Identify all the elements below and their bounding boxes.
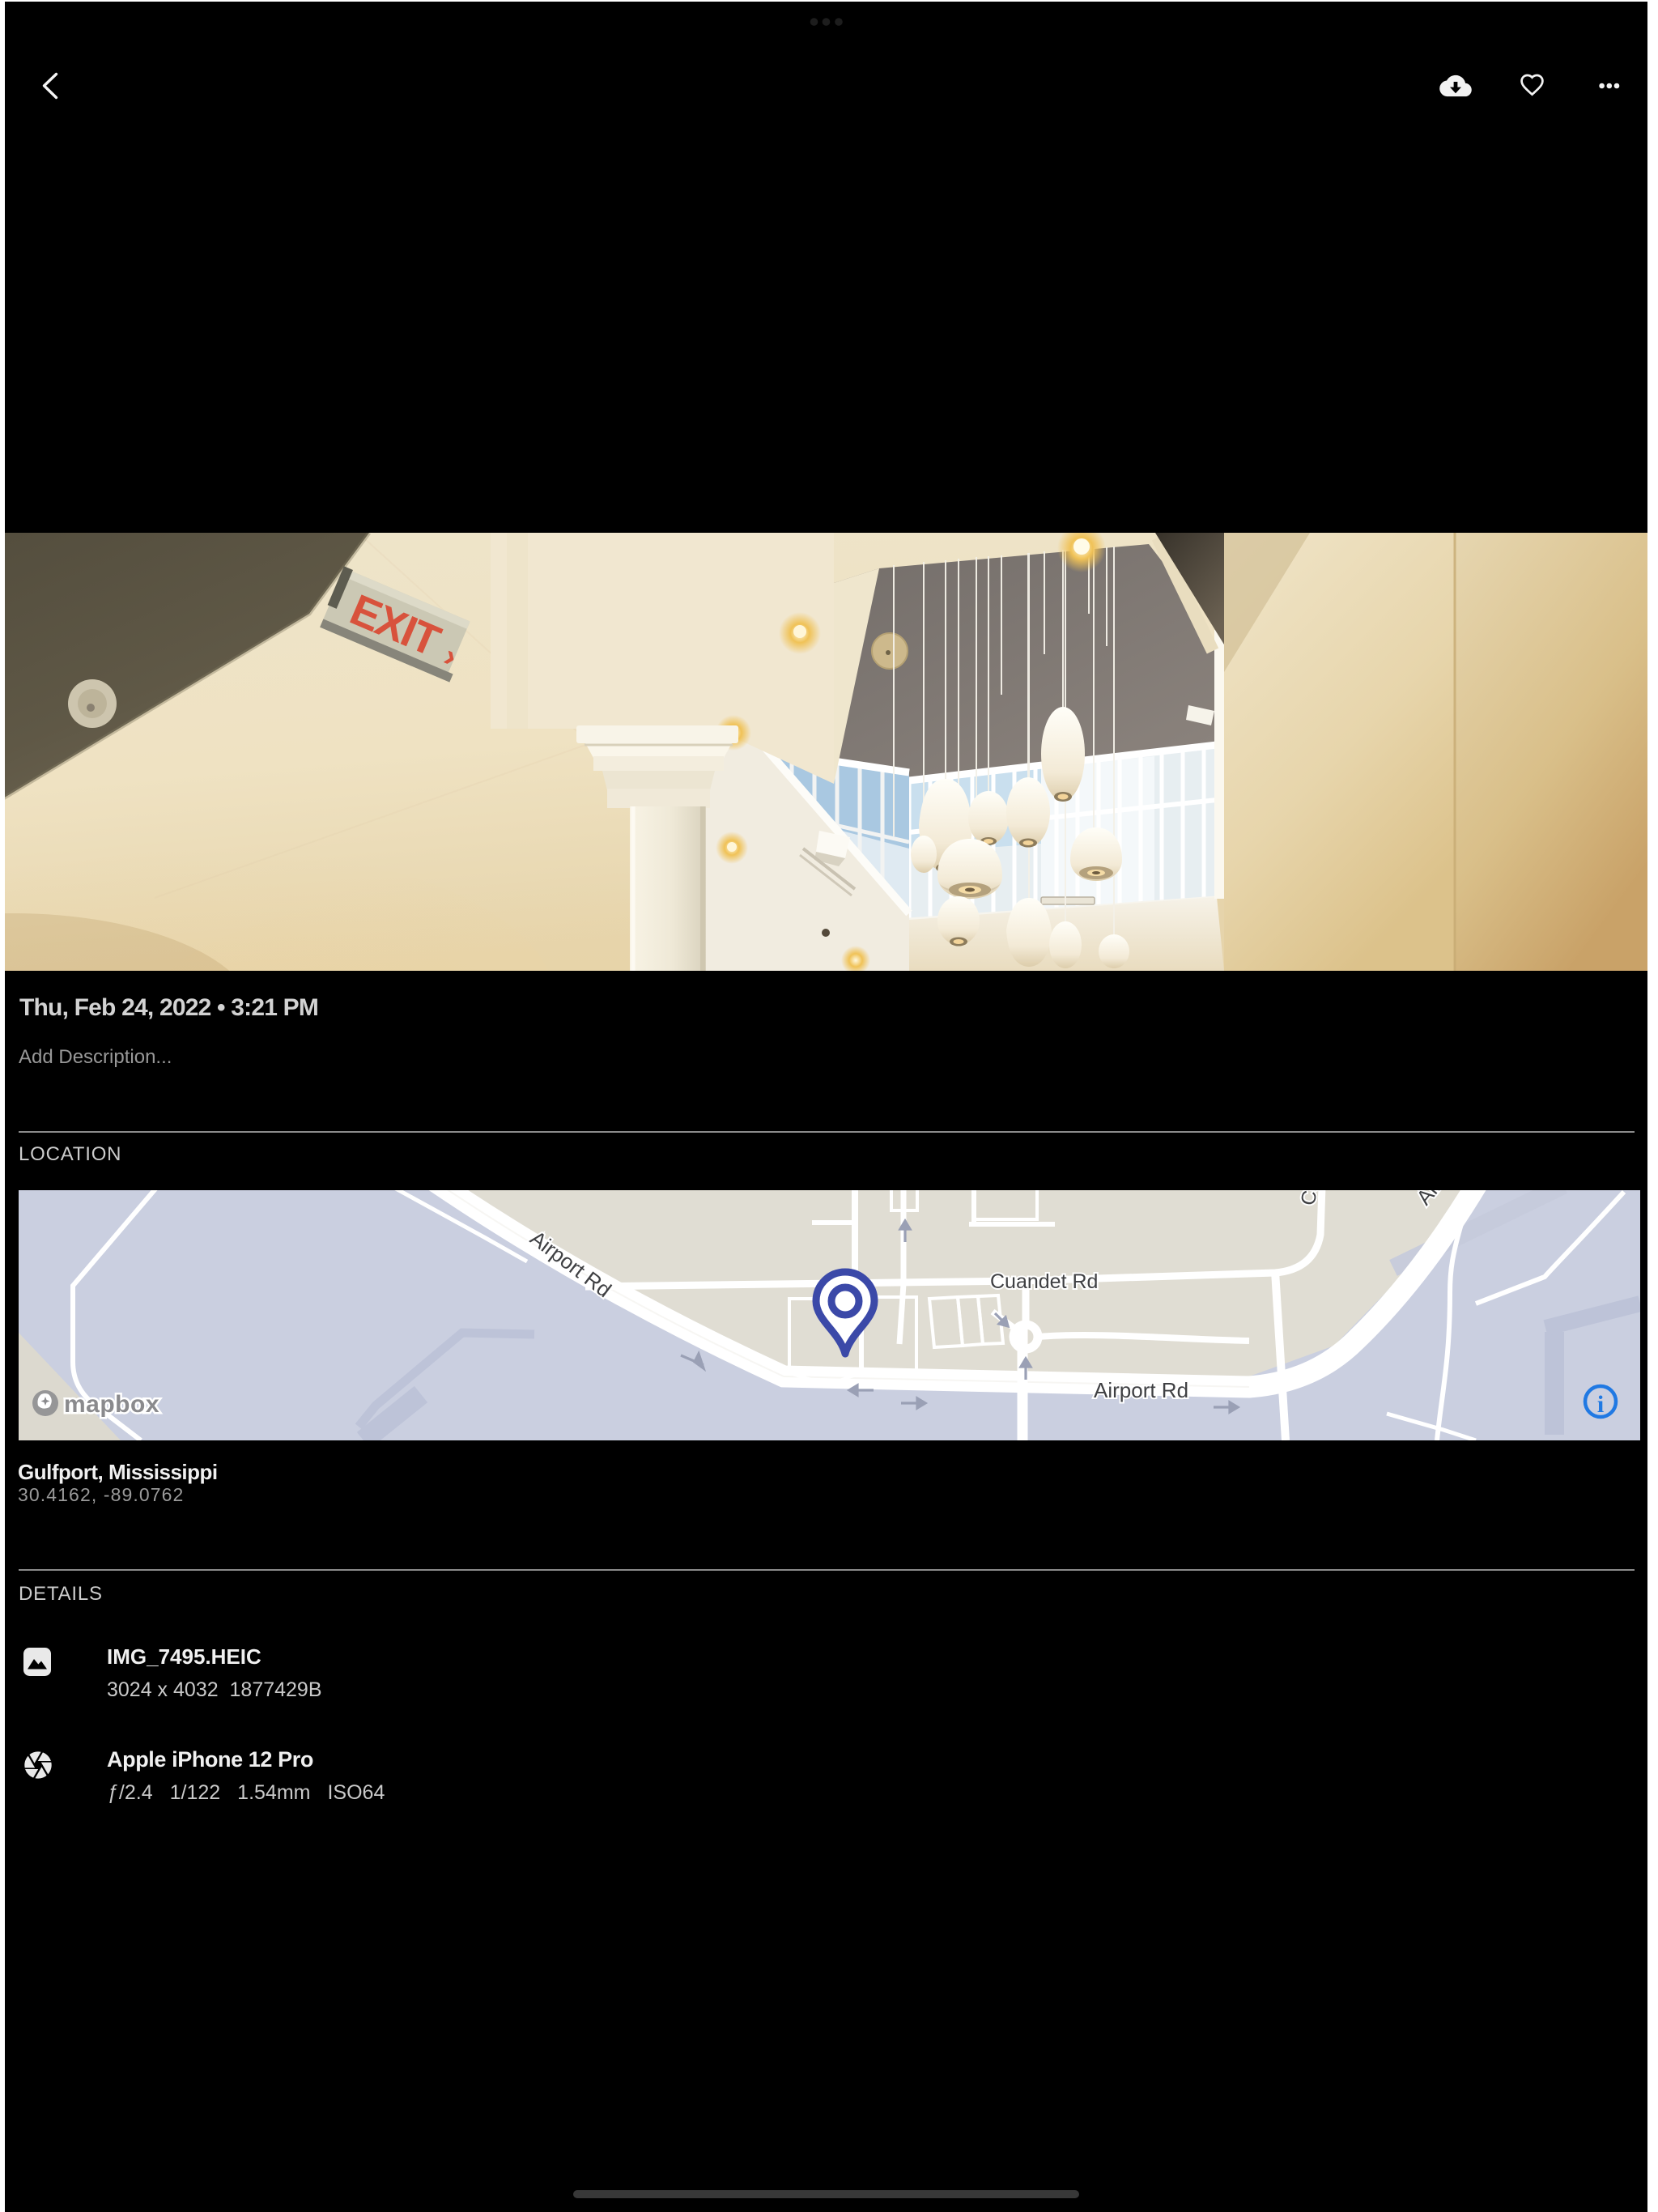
- svg-text:Cuandet Rd: Cuandet Rd: [990, 1270, 1098, 1293]
- svg-text:Airport Rd: Airport Rd: [1094, 1378, 1188, 1402]
- svg-text:i: i: [1597, 1391, 1604, 1418]
- svg-text:mapbox: mapbox: [64, 1391, 159, 1418]
